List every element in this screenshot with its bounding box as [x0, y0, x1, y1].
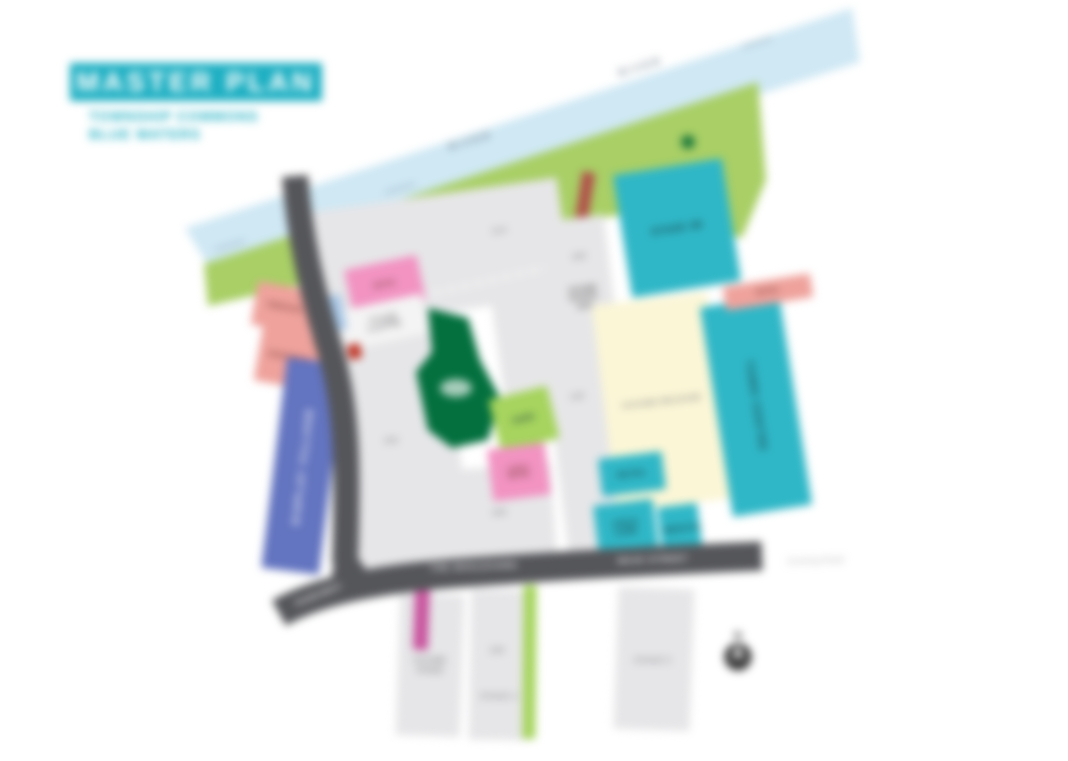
bottom-stage-b-label: STAGE 4 [480, 692, 517, 701]
north-arrow-label: N [716, 630, 760, 642]
bottom-stage-c-label: STAGE 5 [634, 656, 671, 665]
bottom-stage-a-label: FUTURE STAGE [406, 656, 454, 675]
existing-road-note: Existing Road [788, 555, 844, 566]
road-label-parkway: PARKWAY [294, 581, 344, 608]
north-arrow: N [716, 630, 760, 686]
page-title: MASTER PLAN [70, 63, 322, 101]
subtitle-line-2: BLUE WATERS [89, 125, 259, 143]
lot-number-c: 302 [384, 435, 400, 446]
masterplan-canvas: STAGE 2B FUTURE RELEASE TOWN CENTRE RETA… [0, 0, 1068, 761]
lot-number-b: 218 [381, 315, 397, 326]
lot-number-d: 306 [492, 507, 508, 517]
river-label-2: RIVER [617, 56, 664, 80]
lot-number-f: 105 [570, 391, 586, 402]
bottom-stage-b-count: 220 [490, 646, 505, 655]
lot-number-a: 214 [491, 225, 507, 236]
blur-wrapper: STAGE 2B FUTURE RELEASE TOWN CENTRE RETA… [0, 0, 1068, 761]
page-title-label: MASTER PLAN [77, 67, 316, 98]
river-label-1: RIVER [447, 130, 494, 154]
label-layer: MASTER PLAN TOWNSHIP COMMONS BLUE WATERS… [0, 0, 1068, 761]
future-school-site-label: FUTURE SCHOOL SITE [561, 283, 608, 313]
north-arrow-icon [723, 642, 753, 672]
subtitle-line-1: TOWNSHIP COMMONS [89, 107, 259, 125]
road-label-boulevard: THE BOULEVARD [430, 560, 518, 572]
road-label-main-street: MAIN STREET [618, 554, 689, 565]
page-subtitle: TOWNSHIP COMMONS BLUE WATERS [89, 107, 259, 143]
lot-number-e: 300 [572, 251, 588, 262]
